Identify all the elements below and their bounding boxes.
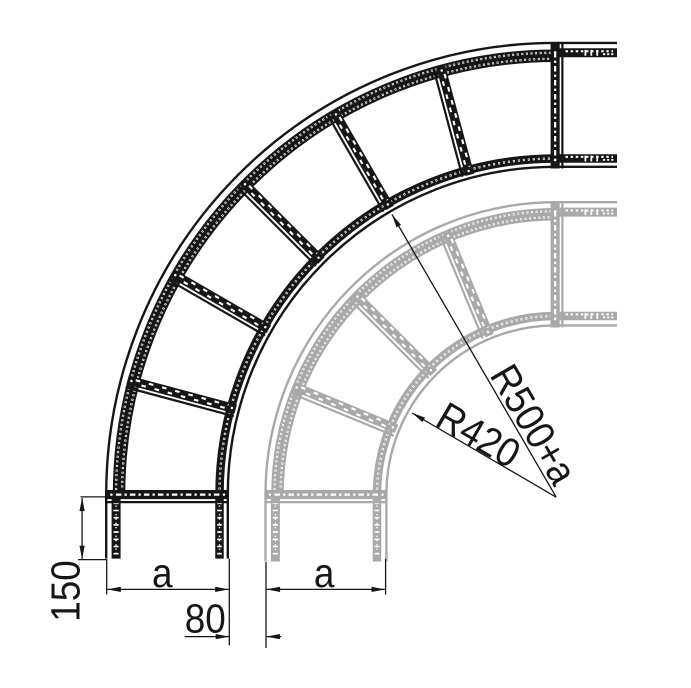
svg-text:a: a bbox=[314, 551, 335, 596]
svg-text:a: a bbox=[152, 551, 173, 596]
svg-text:150: 150 bbox=[44, 560, 89, 621]
svg-text:80: 80 bbox=[185, 597, 226, 642]
